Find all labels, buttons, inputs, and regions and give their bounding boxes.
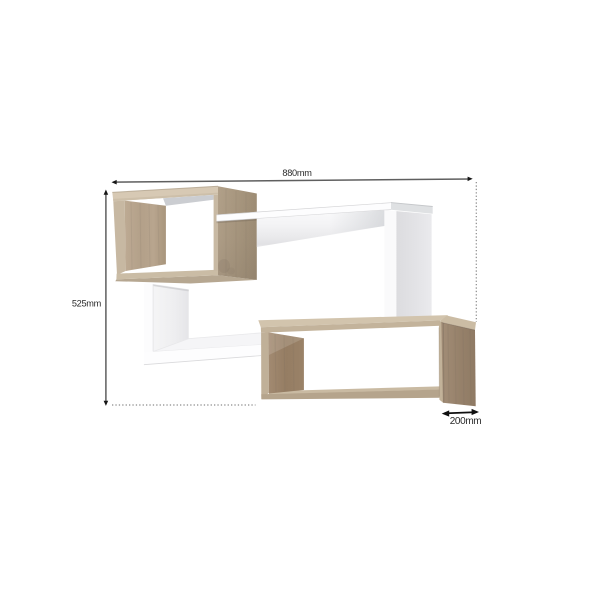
svg-text:880mm: 880mm — [282, 168, 312, 178]
svg-text:200mm: 200mm — [450, 416, 482, 427]
svg-text:525mm: 525mm — [72, 299, 102, 309]
